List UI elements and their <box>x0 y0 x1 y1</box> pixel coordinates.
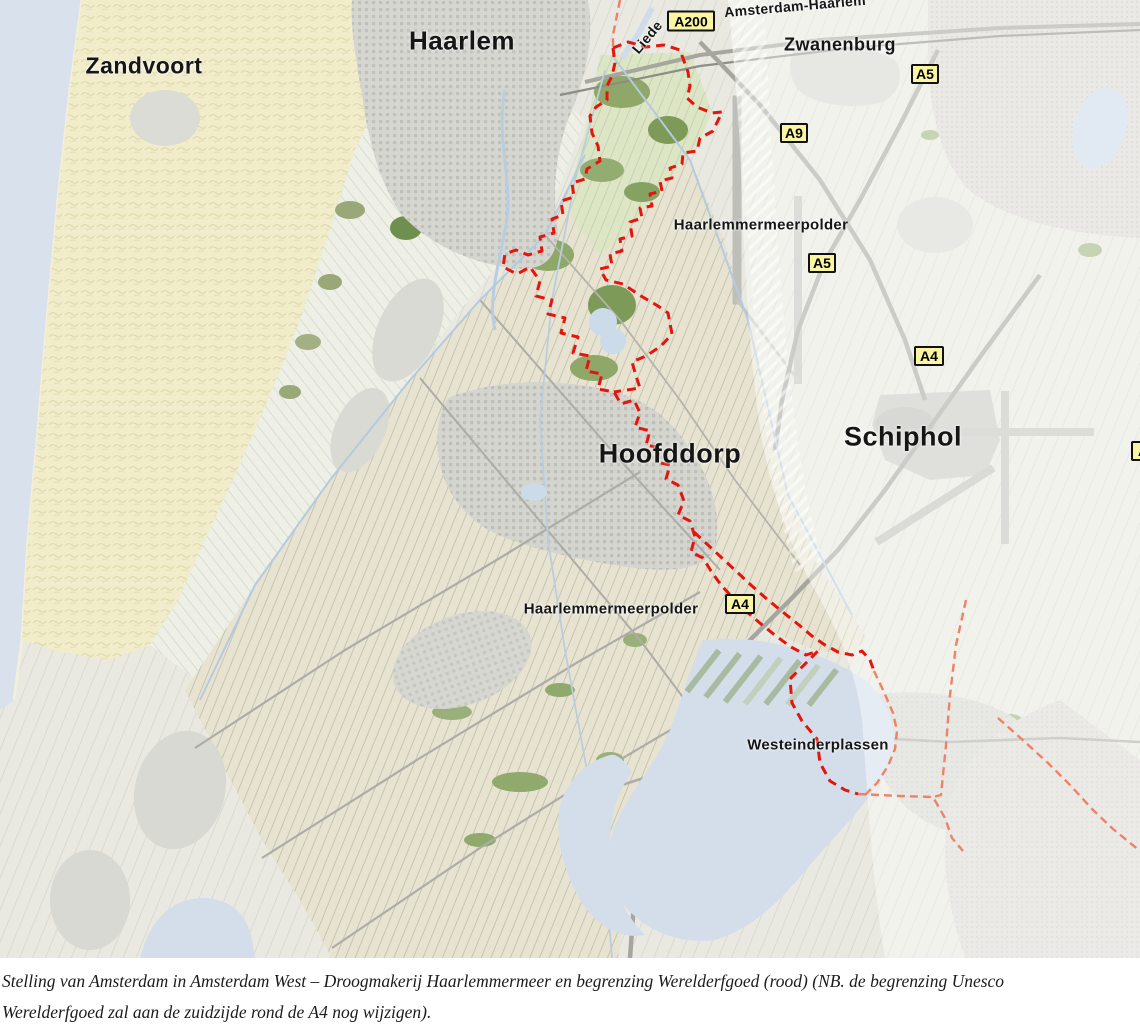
figure-page: Zandvoort Haarlem Zwanenburg Hoofddorp S… <box>0 0 1140 1030</box>
road-badge-a200: A200 <box>667 11 715 32</box>
label-haarlemmermeerpolder-south: Haarlemmermeerpolder <box>524 601 698 618</box>
caption-line-2: Werelderfgoed zal aan de zuidzijde rond … <box>2 997 1136 1028</box>
label-schiphol: Schiphol <box>844 422 962 453</box>
topographic-map: Zandvoort Haarlem Zwanenburg Hoofddorp S… <box>0 0 1140 958</box>
toolenburg-lake <box>521 483 547 501</box>
road-badge-a9: A9 <box>780 123 808 143</box>
road-badge-a5-north: A5 <box>911 64 939 84</box>
urban-zandvoort <box>130 90 200 146</box>
label-haarlemmermeerpolder-north: Haarlemmermeerpolder <box>674 217 848 234</box>
map-canvas <box>0 0 1140 958</box>
road-badge-a4-edge-partial: A4 <box>1131 441 1140 461</box>
label-hoofddorp: Hoofddorp <box>599 439 741 470</box>
figure-caption: Stelling van Amsterdam in Amsterdam West… <box>0 958 1140 1030</box>
label-zandvoort: Zandvoort <box>86 53 203 80</box>
road-badge-a5-mid: A5 <box>808 253 836 273</box>
caption-line-1: Stelling van Amsterdam in Amsterdam West… <box>2 966 1136 997</box>
road-badge-a4-north: A4 <box>914 346 944 366</box>
label-westeinderplassen: Westeinderplassen <box>747 737 889 754</box>
road-badge-a4-south: A4 <box>725 594 755 614</box>
label-zwanenburg: Zwanenburg <box>784 35 896 56</box>
label-haarlem: Haarlem <box>409 26 515 57</box>
